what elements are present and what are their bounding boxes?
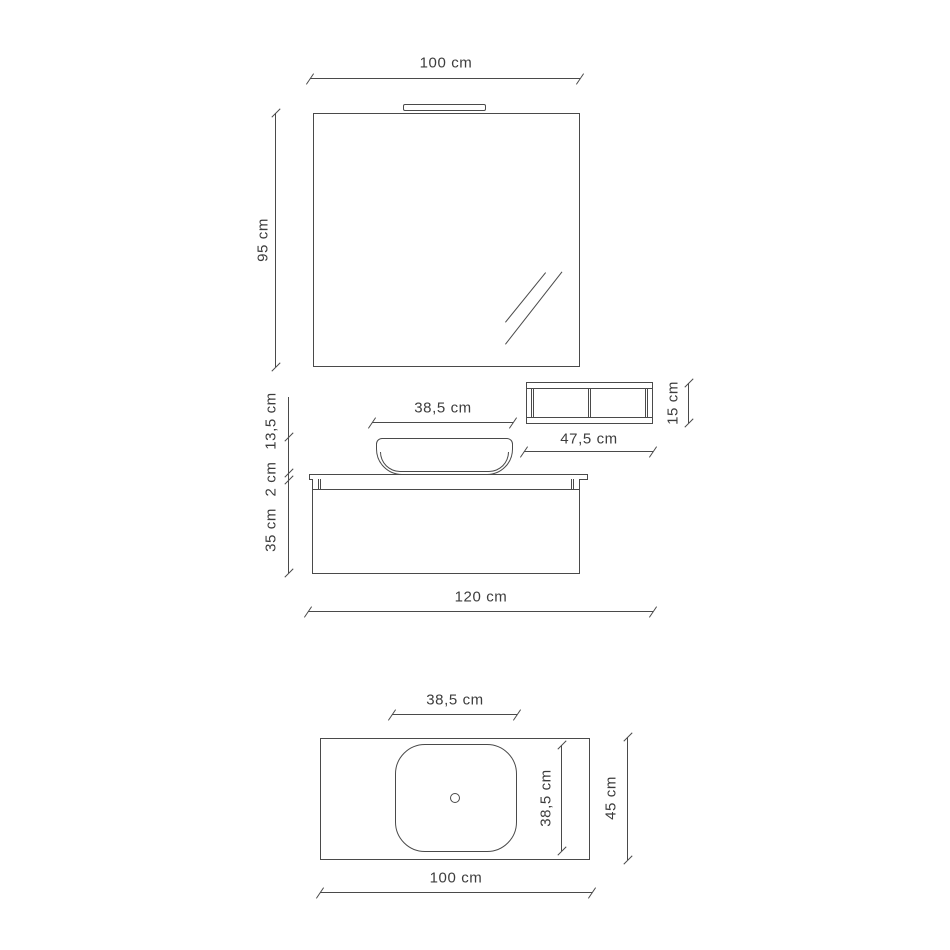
dim-mirror-width [310,78,580,79]
dim-total-width-label: 120 cm [455,589,508,606]
dim-mirror-height-label: 95 cm [255,218,272,262]
shelf-middle-divider [588,389,591,417]
countertop-basin-front [376,438,513,475]
dim-tick [623,732,632,741]
technical-drawing-canvas: 100 cm 95 cm 15 cm 47,5 cm 38,5 cm [0,0,950,950]
dim-tick [623,855,632,864]
dim-plan-basin-width [392,714,517,715]
dim-tick [284,432,293,441]
dim-shelf-width-label: 47,5 cm [560,431,618,448]
dim-basin-width [372,422,513,423]
dim-plan-basin-width-label: 38,5 cm [426,692,484,709]
dim-tick [306,73,314,84]
dim-plan-width [320,892,592,893]
dim-tick [304,606,312,617]
basin-inner-wall-line [380,452,509,472]
dim-tick [509,417,517,428]
dim-total-width [308,611,653,612]
shelf-side-panel-left [531,389,534,417]
mirror [313,113,580,367]
dim-mirror-width-label: 100 cm [420,55,473,72]
dim-tick [284,568,293,577]
dim-tick [576,73,584,84]
drain-hole [450,793,460,803]
dim-basin-height-label: 13,5 cm [263,392,280,450]
dim-tick [588,887,596,898]
shelf-side-panel-right [645,389,648,417]
base-cabinet-front [312,479,580,574]
dim-tick [271,362,280,371]
dim-shelf-height-label: 15 cm [665,381,682,425]
wall-shelf [526,382,653,424]
dim-tick [368,417,376,428]
dim-tick [649,446,657,457]
cabinet-groove-line [313,489,579,490]
dim-tick [316,887,324,898]
dim-countertop-thickness-label: 2 cm [263,462,280,497]
dim-shelf-width [524,451,653,452]
dim-tick [388,709,396,720]
cabinet-end-cap-left [318,479,321,489]
dim-tick [684,378,693,387]
dim-plan-basin-depth [561,745,562,851]
dim-tick [684,418,693,427]
dim-plan-depth [627,737,628,860]
dim-mirror-height [275,113,276,367]
dim-tick [520,446,528,457]
dim-plan-depth-label: 45 cm [603,776,620,820]
dim-cabinet-height-label: 35 cm [263,508,280,552]
dim-tick [649,606,657,617]
dim-left-stack [288,397,289,573]
dim-tick [513,709,521,720]
dim-tick [271,108,280,117]
cabinet-end-cap-right [571,479,574,489]
dim-plan-basin-depth-label: 38,5 cm [538,769,555,827]
dim-plan-width-label: 100 cm [430,870,483,887]
dim-basin-width-label: 38,5 cm [414,400,472,417]
shelf-bottom-panel-line [527,417,652,418]
mirror-lamp [403,104,486,111]
dim-shelf-height [688,383,689,423]
